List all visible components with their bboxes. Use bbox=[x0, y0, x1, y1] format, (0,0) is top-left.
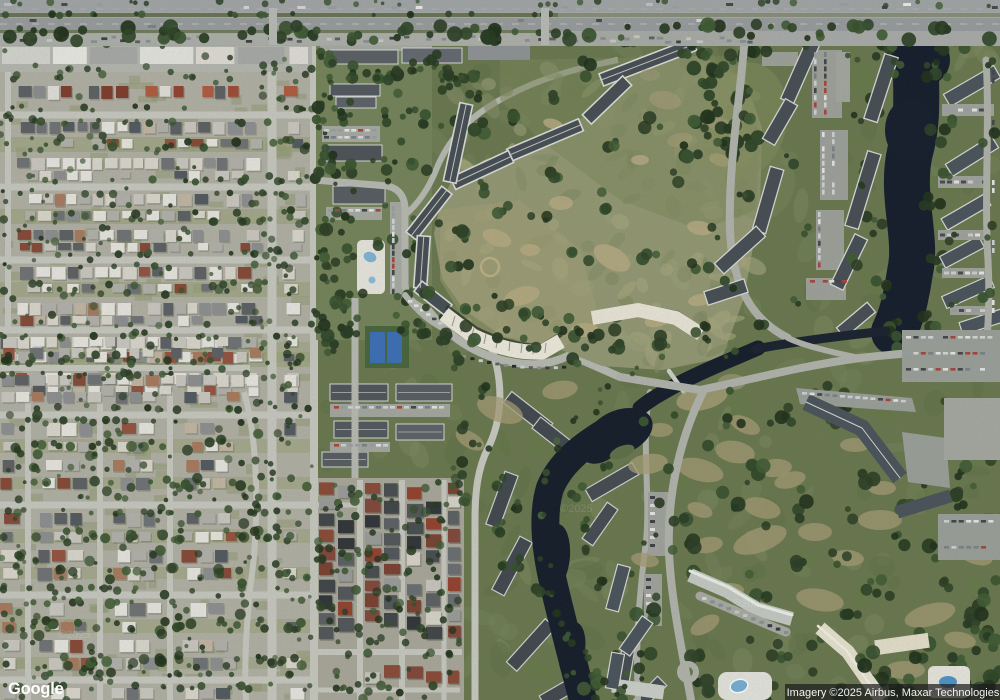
svg-text:©2025: ©2025 bbox=[733, 598, 766, 610]
svg-text:©2025: ©2025 bbox=[58, 629, 91, 641]
svg-text:Imagery ©2025 Airbus, Maxar Te: Imagery ©2025 Airbus, Maxar Technologies bbox=[787, 687, 1000, 699]
svg-text:©2025: ©2025 bbox=[560, 503, 593, 515]
svg-text:Google: Google bbox=[8, 680, 64, 698]
